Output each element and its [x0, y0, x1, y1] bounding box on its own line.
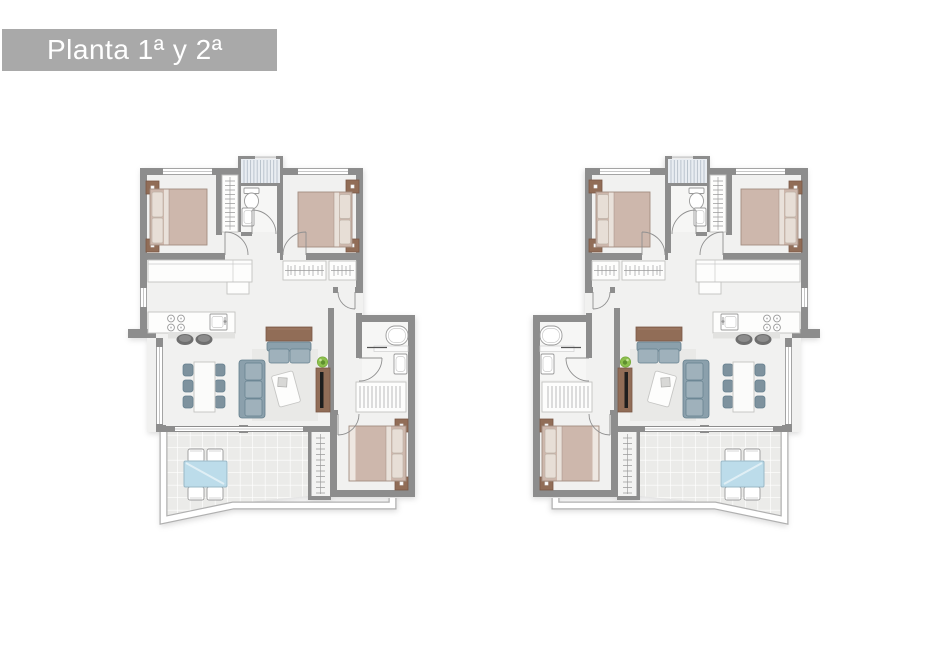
plan-title: Planta 1ª y 2ª: [47, 34, 223, 65]
page: { "title": { "label": "Planta 1ª y 2ª" }…: [0, 0, 941, 652]
apartment-unit-right: [530, 148, 820, 548]
floor-plan-right: [530, 148, 820, 548]
plan-title-banner: Planta 1ª y 2ª: [2, 29, 277, 71]
floor-plan-left: [128, 148, 418, 548]
apartment-unit-left: [128, 148, 418, 548]
